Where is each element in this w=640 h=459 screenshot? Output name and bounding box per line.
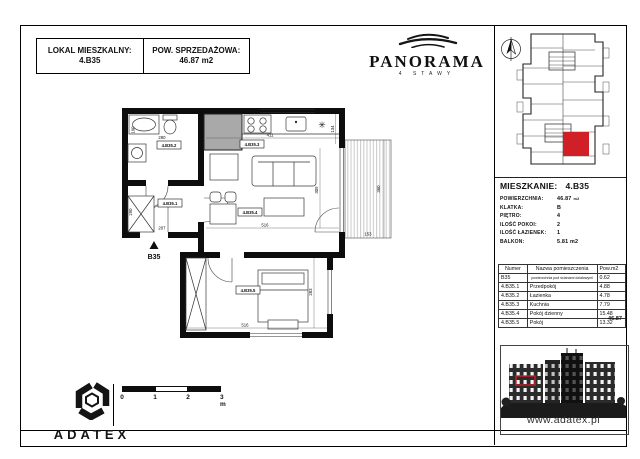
table-row: 4.B35.1 Przedpokój 4.88	[499, 283, 626, 292]
info-value: 5.81 m2	[557, 238, 578, 247]
dim-balcony-width: 153	[364, 232, 372, 237]
scale-segment	[122, 386, 155, 392]
cell-name: powierzchnia pod ścianami działowymi	[527, 274, 597, 283]
kitchen-cabinet	[210, 154, 238, 180]
installation-shaft	[204, 114, 242, 150]
footer-divider	[113, 384, 114, 426]
apartment-title-value: 4.B35	[565, 181, 589, 191]
dim-balcony-height: 360	[376, 185, 381, 193]
scale-tick-2: 2	[186, 394, 190, 401]
dim-left-mid: 290	[128, 208, 133, 216]
dim-right-top: 134	[330, 125, 335, 133]
sale-area-label: POW. SPRZEDAŻOWA:	[152, 46, 240, 56]
highlighted-unit	[563, 132, 589, 156]
table-row: 4.B35.2 Łazienka 4.78	[499, 292, 626, 301]
dim-living-width: 516	[261, 223, 269, 228]
room-label-kitchen: 4.B35.3	[245, 142, 260, 147]
info-separator	[495, 177, 626, 178]
dim-bedroom-width: 516	[241, 323, 249, 328]
apartment-title: MIESZKANIE:4.B35	[500, 181, 626, 191]
room-label-bedroom: 4.B35.5	[241, 288, 256, 293]
toilet-tank	[163, 115, 177, 120]
cell-numer: 4.B35.2	[499, 292, 528, 301]
coffee-table	[264, 198, 304, 216]
scale-labels: 0 1 2 3 m	[122, 394, 232, 402]
info-label: POWIERZCHNIA:	[500, 195, 557, 204]
balcony: 360 153	[345, 140, 391, 238]
col-header-area: Pow.m2	[597, 265, 626, 274]
cell-name: Przedpokój	[527, 283, 597, 292]
washing-machine-icon	[128, 144, 146, 162]
north-compass-icon	[502, 37, 521, 61]
info-label: ILOŚĆ ŁAZIENEK:	[500, 229, 557, 238]
vent-star-icon: ✳	[318, 120, 326, 130]
scale-segment	[188, 386, 221, 392]
stair-core	[545, 52, 575, 142]
scale-tick-1: 1	[153, 394, 157, 401]
cell-name: Kuchnia	[527, 301, 597, 310]
table-row: 4.B35.3 Kuchnia 7.79	[499, 301, 626, 310]
kitchen-sink-icon	[286, 117, 306, 131]
total-area-value: 46.87	[498, 316, 626, 322]
apartment-title-label: MIESZKANIE:	[500, 181, 557, 191]
table-header-row: Numer Nazwa pomieszczenia Pow.m2	[499, 265, 626, 274]
storey-key-plan	[497, 28, 628, 170]
cell-area: 7.79	[597, 301, 626, 310]
info-label: ILOŚĆ POKOI:	[500, 221, 557, 230]
room-label-living: 4.B35.4	[243, 210, 258, 215]
info-unit: m2	[574, 195, 580, 204]
col-header-numer: Numer	[499, 265, 528, 274]
bathroom-fixtures	[128, 115, 177, 162]
toilet-icon	[164, 120, 176, 134]
brand-subtitle: 4 STAWY	[362, 71, 492, 77]
brand-logo: PANORAMA 4 STAWY	[362, 32, 492, 84]
entrance-marker: B35	[148, 241, 161, 261]
room-label-bathroom: 4.B35.2	[162, 143, 177, 148]
cell-name: Łazienka	[527, 292, 597, 301]
waves-icon	[362, 32, 492, 48]
header-box: LOKAL MIESZKALNY: 4.B35 POW. SPRZEDAŻOWA…	[36, 38, 250, 74]
partition-area-row: B35 powierzchnia pod ścianami działowymi…	[499, 274, 626, 283]
sale-area-cell: POW. SPRZEDAŻOWA: 46.87 m2	[143, 39, 250, 73]
cell-numer: B35	[499, 274, 528, 283]
info-value: 4	[557, 212, 560, 221]
info-row: ILOŚĆ POKOI: 2	[500, 221, 626, 230]
building-outline	[517, 34, 609, 164]
scale-bar	[122, 386, 221, 392]
cell-area: 0.62	[597, 274, 626, 283]
unit-number-cell: LOKAL MIESZKALNY: 4.B35	[37, 39, 143, 73]
info-value: 1	[557, 229, 560, 238]
scale-segment	[155, 386, 188, 392]
unit-number-value: 4.B35	[79, 56, 100, 66]
cell-numer: 4.B35.1	[499, 283, 528, 292]
info-row: ILOŚĆ ŁAZIENEK: 1	[500, 229, 626, 238]
chair-icon	[210, 192, 221, 202]
adatex-knot-icon	[69, 380, 115, 420]
scale-tick-0: 0	[120, 394, 124, 401]
cell-numer: 4.B35.3	[499, 301, 528, 310]
info-row: KLATKA: B	[500, 204, 626, 213]
sofa-icon	[252, 156, 316, 186]
dim-hall-entry: 207	[158, 226, 166, 231]
info-label: KLATKA:	[500, 204, 557, 213]
info-value: B	[557, 204, 561, 213]
info-value: 2	[557, 221, 560, 230]
dining-table	[210, 204, 236, 224]
dim-bedroom-height: 283	[308, 288, 313, 296]
info-label: PIĘTRO:	[500, 212, 557, 221]
brand-name: PANORAMA	[362, 53, 492, 70]
chair-icon	[225, 192, 236, 202]
unit-number-label: LOKAL MIESZKALNY:	[48, 46, 132, 56]
cell-area: 4.88	[597, 283, 626, 292]
apartment-info: MIESZKANIE:4.B35 POWIERZCHNIA: 46.87 m2 …	[500, 181, 626, 247]
scale-tick-3: 3 m	[220, 394, 228, 408]
dim-kitchen-width: 411	[267, 133, 274, 138]
cell-area: 4.78	[597, 292, 626, 301]
col-header-name: Nazwa pomieszczenia	[527, 265, 597, 274]
website-url: www.adatex.pl	[500, 414, 627, 426]
room-label-hall: 4.B35.1	[163, 201, 178, 206]
dim-living-height: 309	[314, 186, 319, 194]
adatex-logo-text: ADATEX	[42, 427, 142, 442]
building-silhouette	[501, 348, 626, 418]
info-value: 46.87	[557, 195, 572, 204]
bed-bench	[268, 320, 298, 329]
sale-area-value: 46.87 m2	[179, 56, 213, 66]
info-row: POWIERZCHNIA: 46.87 m2	[500, 195, 626, 204]
dim-left-top: 190	[131, 126, 136, 134]
right-column-divider	[494, 25, 495, 445]
info-row: BALKON: 5.81 m2	[500, 238, 626, 247]
info-label: BALKON:	[500, 238, 557, 247]
floor-plan: 360 153	[110, 92, 490, 347]
info-row: PIĘTRO: 4	[500, 212, 626, 221]
entrance-label: B35	[148, 254, 161, 261]
dim-bath-width: 290	[158, 135, 166, 140]
